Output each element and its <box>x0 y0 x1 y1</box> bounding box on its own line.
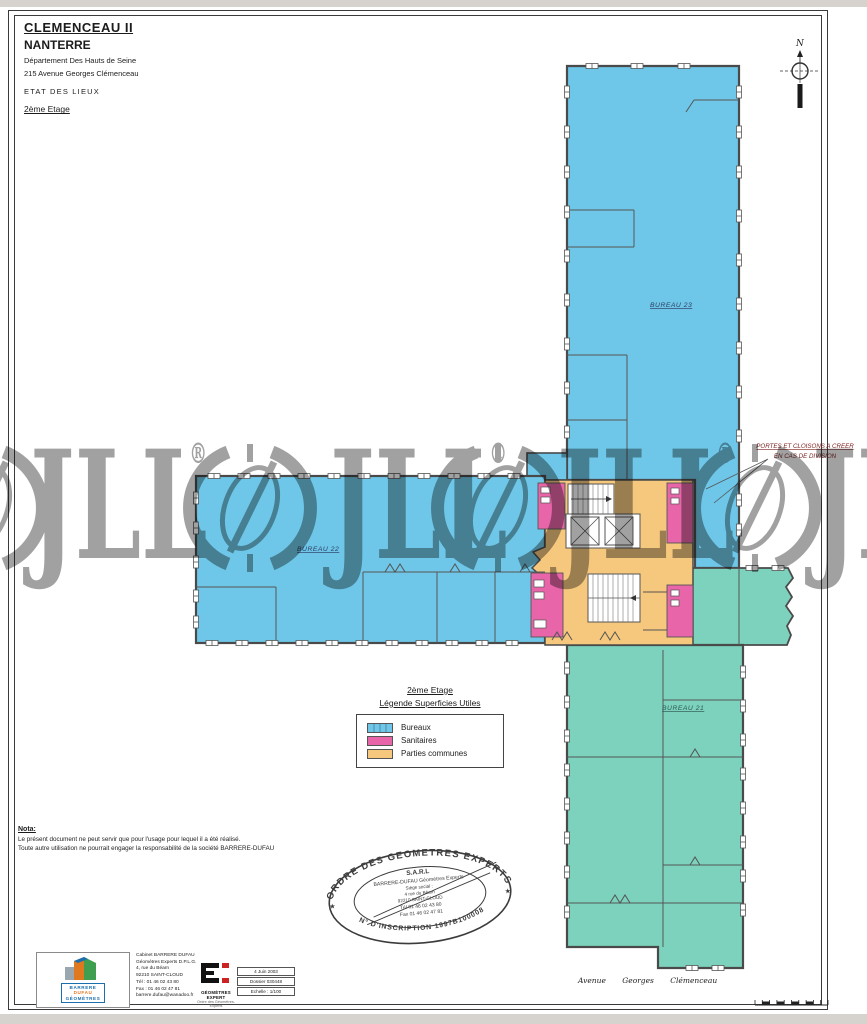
legend-item-bureaux: Bureaux <box>367 723 495 733</box>
legend-title: Légende Superficies Utiles <box>356 697 504 710</box>
address-line: 215 Avenue Georges Clémenceau <box>24 69 139 78</box>
barrere-dufau-building-icon <box>63 955 103 981</box>
legend-label-parties-communes: Parties communes <box>401 749 467 758</box>
floor-label: 2ème Etage <box>24 104 139 115</box>
north-label: N <box>795 39 805 49</box>
scale-bar <box>755 1000 828 1005</box>
barrere-dufau-wordmark: BARRERE DUFAU GÉOMÈTRES <box>61 983 106 1003</box>
street-label: Avenue Georges Clémenceau <box>577 976 717 985</box>
geometres-expert-name: GÉOMÈTRES EXPERT <box>194 990 238 1000</box>
room-label-bureau23: BUREAU 23 <box>650 302 692 309</box>
legend: 2ème Etage Légende Superficies Utiles Bu… <box>356 684 504 768</box>
stamp-star-right: ★ <box>504 887 511 896</box>
info-row-echelle: Echelle : 1/100 <box>237 987 295 996</box>
info-row-dossier: Dossier 030448 <box>237 977 295 986</box>
bd-word-3: GÉOMÈTRES <box>66 996 101 1001</box>
company-line: Tél : 01 46 02 43 80 <box>136 980 196 987</box>
company-line: Cabinet BARRERE DUFAU <box>136 953 196 960</box>
building-name: CLEMENCEAU II <box>24 20 139 36</box>
legend-label-bureaux: Bureaux <box>401 723 431 732</box>
room-label-bureau21: BUREAU 21 <box>662 705 704 712</box>
legend-item-parties-communes: Parties communes <box>367 749 495 759</box>
document-type: ETAT DES LIEUX <box>24 87 139 96</box>
north-arrow-icon: N <box>780 39 820 108</box>
legend-floor: 2ème Etage <box>356 684 504 697</box>
legend-label-sanitaires: Sanitaires <box>401 736 437 745</box>
nota-heading: Nota: <box>18 825 274 835</box>
nota-line2: Toute autre utilisation ne pourrait enga… <box>18 844 274 853</box>
nota-block: Nota: Le présent document ne peut servir… <box>18 825 274 853</box>
floor-plan-drawing: BUREAU 23 BUREAU 22 BUREAU 21 PORTES ET … <box>0 0 867 1024</box>
jll-watermark-text: JLL <box>549 417 734 594</box>
geometres-expert-logo: GÉOMÈTRES EXPERT Ordre des Géomètres-Exp… <box>194 962 238 1008</box>
geometres-expert-icon <box>199 962 233 984</box>
company-info: Cabinet BARRERE DUFAU Géomètres Experts … <box>136 953 196 1000</box>
registered-mark: ® <box>189 437 207 471</box>
wing-south-bureaux <box>567 645 743 968</box>
title-block: CLEMENCEAU II NANTERRE Département Des H… <box>24 20 139 115</box>
company-line: barrere.dufau@wanadoo.fr <box>136 993 196 1000</box>
company-line: 92210 SAINT-CLOUD <box>136 973 196 980</box>
surveyor-stamp: ORDRE DES GEOMETRES EXPERTS N° D'INSCRIP… <box>321 840 519 951</box>
stamp-line1: S.A.R.L <box>406 868 430 877</box>
legend-swatch-bureaux <box>367 723 393 733</box>
department-line: Département Des Hauts de Seine <box>24 56 139 65</box>
stamp-star-left: ★ <box>329 902 336 911</box>
legend-item-sanitaires: Sanitaires <box>367 736 495 746</box>
jll-watermark-text: JLL <box>804 417 867 594</box>
registered-mark: ® <box>489 437 507 471</box>
jll-watermark-text: JLL <box>322 417 507 594</box>
document-page: BUREAU 23 BUREAU 22 BUREAU 21 PORTES ET … <box>0 0 867 1024</box>
legend-swatch-parties-communes <box>367 749 393 759</box>
jll-watermark-text: JLL <box>22 417 207 594</box>
barrere-dufau-logo: BARRERE DUFAU GÉOMÈTRES <box>36 952 130 1008</box>
legend-swatch-sanitaires <box>367 736 393 746</box>
nota-line1: Le présent document ne peut servir que p… <box>18 835 274 844</box>
registered-mark: ® <box>716 437 734 471</box>
geometres-expert-subtitle: Ordre des Géomètres-Experts <box>194 1000 238 1008</box>
info-row-date: 4 Juin 2003 <box>237 967 295 976</box>
drawing-info-table: 4 Juin 2003 Dossier 030448 Echelle : 1/1… <box>237 966 295 996</box>
city-name: NANTERRE <box>24 38 139 53</box>
legend-box: Bureaux Sanitaires Parties communes <box>356 714 504 768</box>
